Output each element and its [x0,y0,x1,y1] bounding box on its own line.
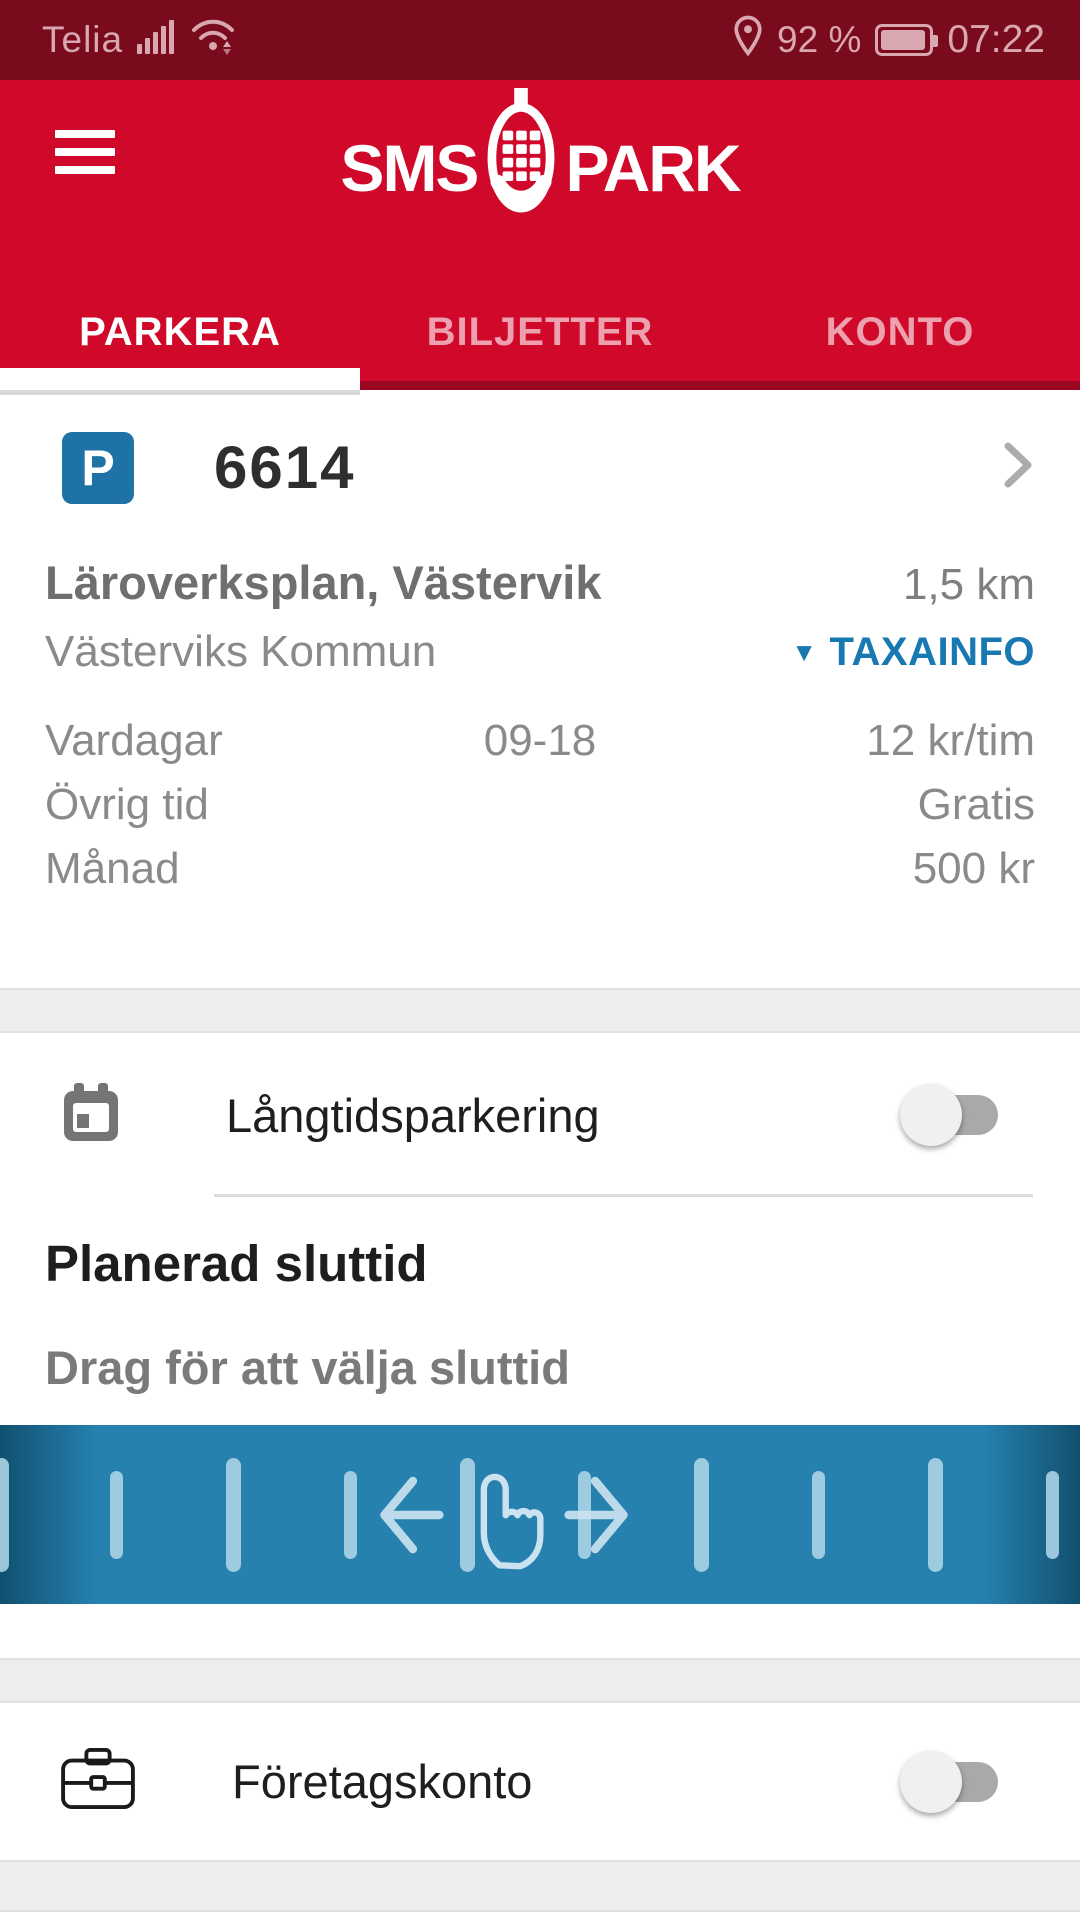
station-row[interactable]: P 6614 [62,430,1035,505]
tab-konto[interactable]: KONTO [720,300,1080,365]
ruler-tick-major [928,1458,943,1572]
briefcase-icon [60,1747,136,1816]
logo-text-park: PARK [565,107,739,201]
station-operator: Västerviks Kommun [45,627,436,677]
ruler-tick-major [226,1458,241,1572]
carrier-label: Telia [42,19,123,61]
longterm-toggle-row: Långtidsparkering [0,1033,1080,1197]
station-card: P 6614 Läroverksplan, Västervik 1,5 km V… [0,430,1080,988]
rate-row-weekdays: Vardagar 09-18 12 kr/tim [45,709,1035,773]
wifi-icon [191,17,237,64]
station-operator-row: Västerviks Kommun ▼ TAXAINFO [45,619,1035,685]
station-name: Läroverksplan, Västervik [45,555,601,610]
rate-row-other: Övrig tid Gratis [45,773,1035,837]
rate-table: Vardagar 09-18 12 kr/tim Övrig tid Grati… [45,709,1035,901]
arrow-right-icon [563,1475,631,1560]
row-divider [214,1194,1033,1197]
active-tab-indicator [0,368,360,390]
taxainfo-label: TAXAINFO [830,630,1035,675]
station-address-row: Läroverksplan, Västervik 1,5 km [45,555,1035,619]
switch-thumb [900,1751,962,1813]
ruler-tick-minor [812,1471,825,1559]
section-divider [0,1860,1080,1912]
status-left: Telia [42,17,237,64]
chevron-down-icon: ▼ [791,639,817,665]
section-divider [0,1658,1080,1703]
calendar-icon [62,1083,120,1148]
bottom-spacer [0,1912,1080,1920]
parking-badge: P [62,432,134,504]
endtime-slider[interactable] [0,1425,1080,1604]
app-screen: Telia [0,0,1080,1920]
status-right: 92 % 07:22 [733,15,1045,66]
battery-percent-label: 92 % [777,19,861,61]
taxainfo-link[interactable]: ▼ TAXAINFO [791,630,1035,675]
drag-hint-text: Drag för att välja sluttid [45,1340,1080,1396]
status-bar: Telia [0,0,1080,80]
chevron-right-icon [1003,441,1033,494]
phone-keypad-icon [487,88,555,219]
business-toggle-row: Företagskonto [0,1703,1080,1860]
switch-thumb [900,1084,962,1146]
planned-endtime-heading: Planerad sluttid [45,1234,1080,1294]
tab-biljetter[interactable]: BILJETTER [360,300,720,365]
longterm-label: Långtidsparkering [226,1088,600,1143]
arrow-left-icon [377,1475,445,1560]
logo-text-sms: SMS [340,107,477,201]
ruler-tick-minor [110,1471,123,1559]
ruler-tick-major [694,1458,709,1572]
section-divider [0,988,1080,1033]
longterm-switch[interactable] [900,1083,1000,1147]
app-logo: SMS PARK [0,88,1080,219]
signal-strength-icon [137,18,177,63]
station-distance: 1,5 km [903,560,1035,610]
ruler-tick-major [0,1458,9,1572]
battery-icon [875,24,933,56]
business-label: Företagskonto [232,1754,532,1809]
location-pin-icon [733,15,763,66]
longterm-section: Långtidsparkering Planerad sluttid Drag … [0,1033,1080,1658]
rate-row-month: Månad 500 kr [45,837,1035,901]
drag-hand-icon [472,1461,554,1578]
clock-label: 07:22 [947,18,1045,62]
tab-bar: PARKERA BILJETTER KONTO [0,300,1080,365]
ruler-tick-minor [1046,1471,1059,1559]
station-code: 6614 [214,433,355,502]
ruler-tick-minor [344,1471,357,1559]
business-switch[interactable] [900,1750,1000,1814]
tab-parkera[interactable]: PARKERA [0,300,360,365]
app-header: SMS PARK PARKERA [0,80,1080,390]
